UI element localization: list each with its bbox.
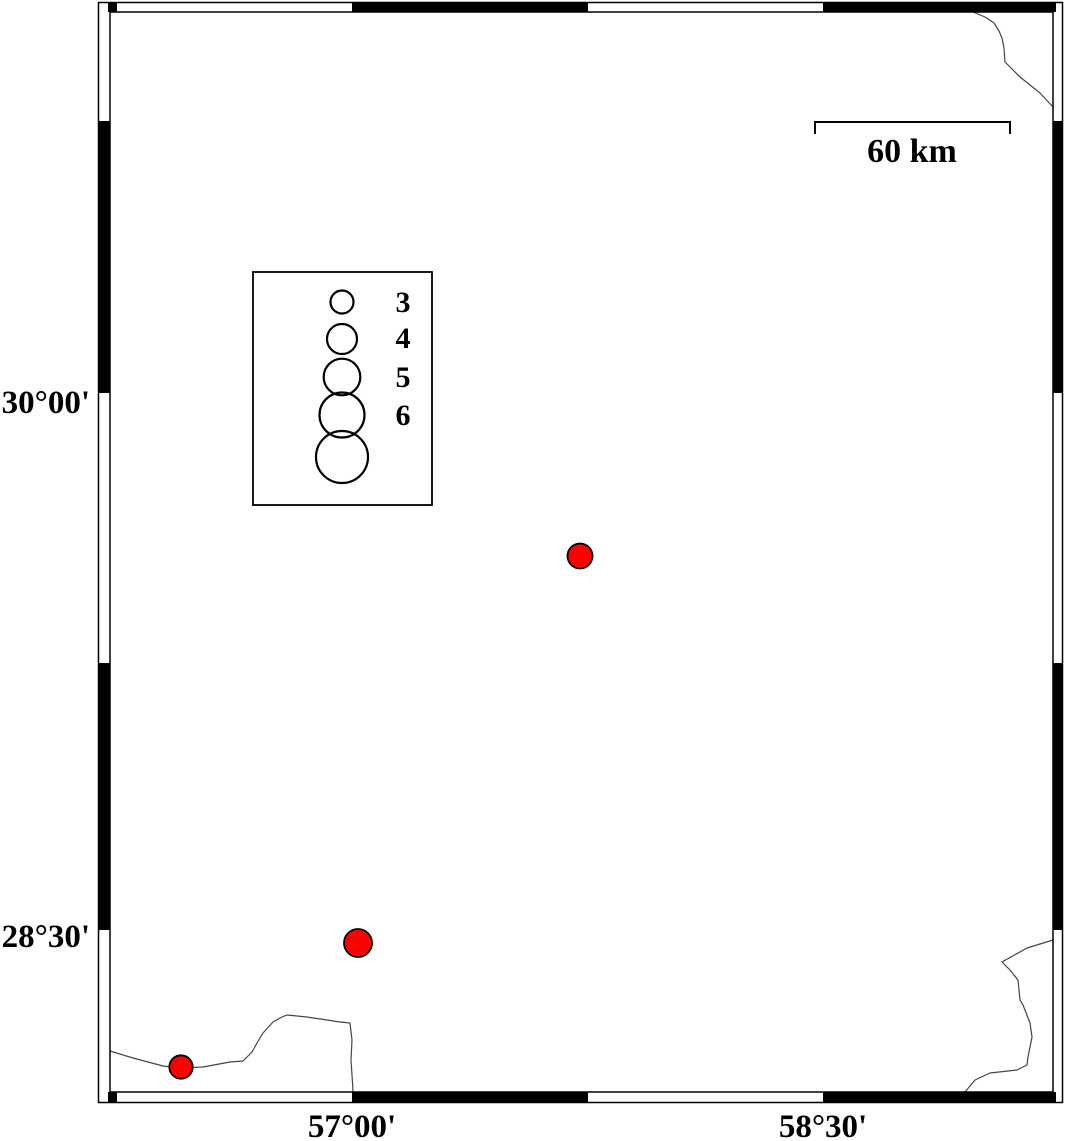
frame-segment-bottom (108, 1092, 117, 1102)
frame-segment-top (823, 3, 1056, 12)
scale-bar: 60 km (815, 122, 1010, 170)
earthquake-map-page: 30°00' 28°30' 57°00' 58°30' 60 km 3 4 5 … (0, 0, 1066, 1141)
frame-segment-left (99, 121, 110, 393)
legend-label-m5: 5 (396, 361, 411, 394)
frame-segment-right (1053, 121, 1062, 393)
frame-segment-bottom (352, 1092, 588, 1102)
legend-label-m4: 4 (396, 322, 411, 355)
lon-label-58-30: 58°30' (779, 1109, 867, 1141)
frame-segment-right (1053, 663, 1062, 930)
latitude-labels: 30°00' 28°30' (2, 385, 90, 955)
legend-label-m6: 6 (396, 399, 411, 432)
earthquake-epicenter (169, 1055, 192, 1078)
magnitude-legend: 3 4 5 6 (253, 272, 432, 505)
coastline-top-right (973, 12, 1053, 107)
legend-label-m3: 3 (396, 286, 411, 319)
coastline-bottom-left (110, 1015, 353, 1091)
earthquake-map: 30°00' 28°30' 57°00' 58°30' 60 km 3 4 5 … (0, 0, 1066, 1141)
frame-segment-top (352, 3, 588, 12)
earthquake-epicenter (344, 929, 372, 957)
longitude-labels: 57°00' 58°30' (308, 1109, 867, 1141)
frame-segment-left (99, 663, 110, 930)
frame-segment-top (108, 3, 117, 12)
lat-label-30-00: 30°00' (2, 385, 90, 421)
lat-label-28-30: 28°30' (2, 919, 90, 955)
scale-bar-label: 60 km (867, 133, 957, 170)
earthquake-epicenter (568, 544, 593, 569)
earthquake-epicenters (169, 544, 592, 1079)
lon-label-57-00: 57°00' (308, 1109, 396, 1141)
coastline-bottom-right (965, 940, 1053, 1092)
frame-segment-bottom (823, 1092, 1056, 1102)
